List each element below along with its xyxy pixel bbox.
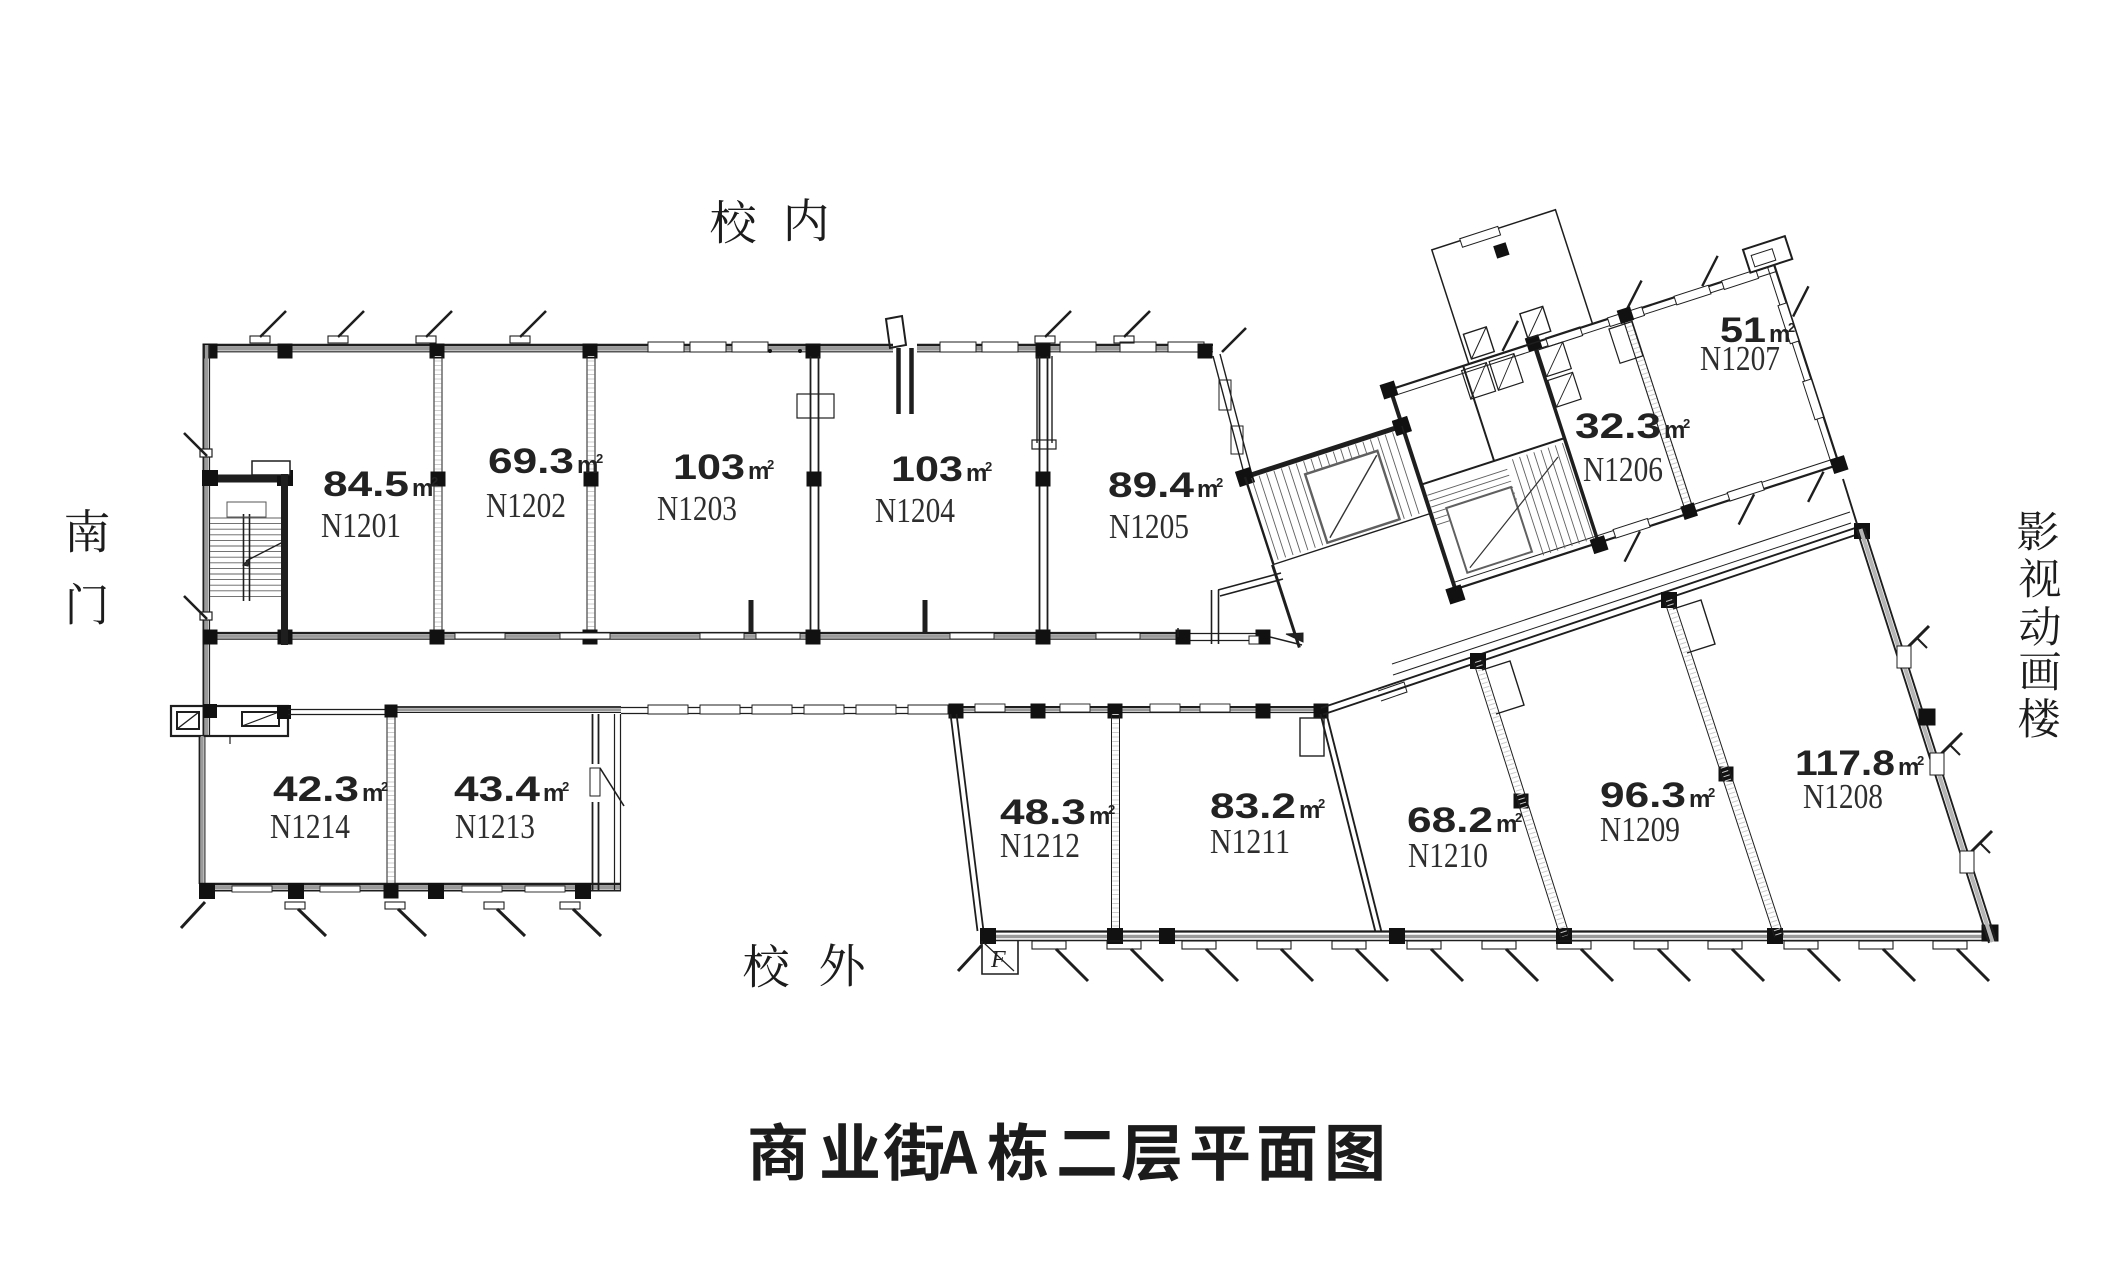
svg-text:2: 2 [381, 779, 388, 794]
svg-text:2: 2 [1108, 802, 1115, 817]
svg-text:N1207: N1207 [1700, 339, 1780, 378]
svg-text:N1213: N1213 [455, 807, 535, 846]
svg-text:N1210: N1210 [1408, 836, 1488, 875]
svg-text:N1214: N1214 [270, 807, 350, 846]
svg-text:F: F [990, 947, 1006, 973]
svg-text:2: 2 [562, 779, 569, 794]
svg-text:N1208: N1208 [1803, 777, 1883, 816]
svg-text:2: 2 [1216, 475, 1223, 490]
svg-text:N1206: N1206 [1583, 450, 1663, 489]
svg-text:N1204: N1204 [875, 491, 955, 530]
svg-text:103: 103 [891, 450, 963, 489]
svg-text:2: 2 [1788, 320, 1795, 335]
svg-text:103: 103 [673, 448, 745, 487]
svg-text:69.3: 69.3 [488, 442, 574, 481]
svg-text:N1211: N1211 [1210, 822, 1290, 861]
svg-text:2: 2 [1917, 753, 1924, 768]
svg-text:2: 2 [1515, 810, 1522, 825]
svg-text:42.3: 42.3 [273, 770, 359, 809]
svg-text:N1212: N1212 [1000, 826, 1080, 865]
svg-text:2: 2 [985, 459, 992, 474]
svg-text:43.4: 43.4 [454, 770, 541, 809]
svg-text:N1205: N1205 [1109, 507, 1189, 546]
svg-text:83.2: 83.2 [1210, 787, 1296, 826]
svg-text:N1201: N1201 [321, 506, 401, 545]
svg-text:2: 2 [1318, 796, 1325, 811]
svg-text:2: 2 [1708, 785, 1715, 800]
svg-text:2: 2 [1683, 416, 1690, 431]
svg-text:84.5: 84.5 [323, 465, 409, 504]
svg-text:2: 2 [431, 474, 438, 489]
svg-text:N1203: N1203 [657, 489, 737, 528]
svg-text:N1202: N1202 [486, 486, 566, 525]
svg-text:89.4: 89.4 [1108, 466, 1195, 505]
svg-text:2: 2 [767, 457, 774, 472]
svg-text:2: 2 [596, 451, 603, 466]
svg-text:32.3: 32.3 [1575, 407, 1661, 446]
svg-text:N1209: N1209 [1600, 810, 1680, 849]
svg-text:68.2: 68.2 [1407, 801, 1493, 840]
